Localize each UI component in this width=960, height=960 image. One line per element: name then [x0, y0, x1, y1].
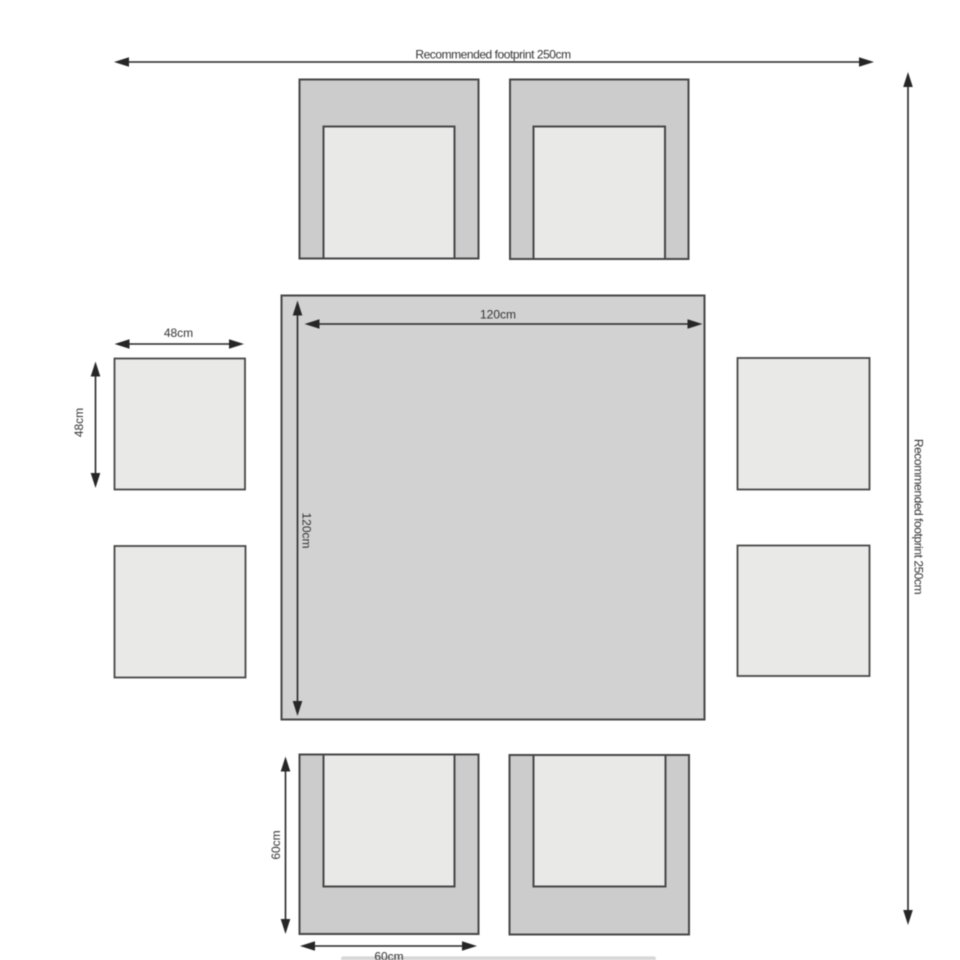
svg-text:120cm: 120cm [300, 512, 314, 548]
svg-text:48cm: 48cm [72, 408, 86, 437]
svg-text:60cm: 60cm [269, 830, 283, 859]
svg-text:48cm: 48cm [164, 326, 193, 340]
svg-text:60cm: 60cm [374, 950, 403, 960]
svg-text:Recommended footprint 250cm: Recommended footprint 250cm [912, 439, 926, 595]
svg-text:120cm: 120cm [480, 308, 516, 322]
svg-text:Recommended footprint 250cm: Recommended footprint 250cm [415, 48, 571, 62]
